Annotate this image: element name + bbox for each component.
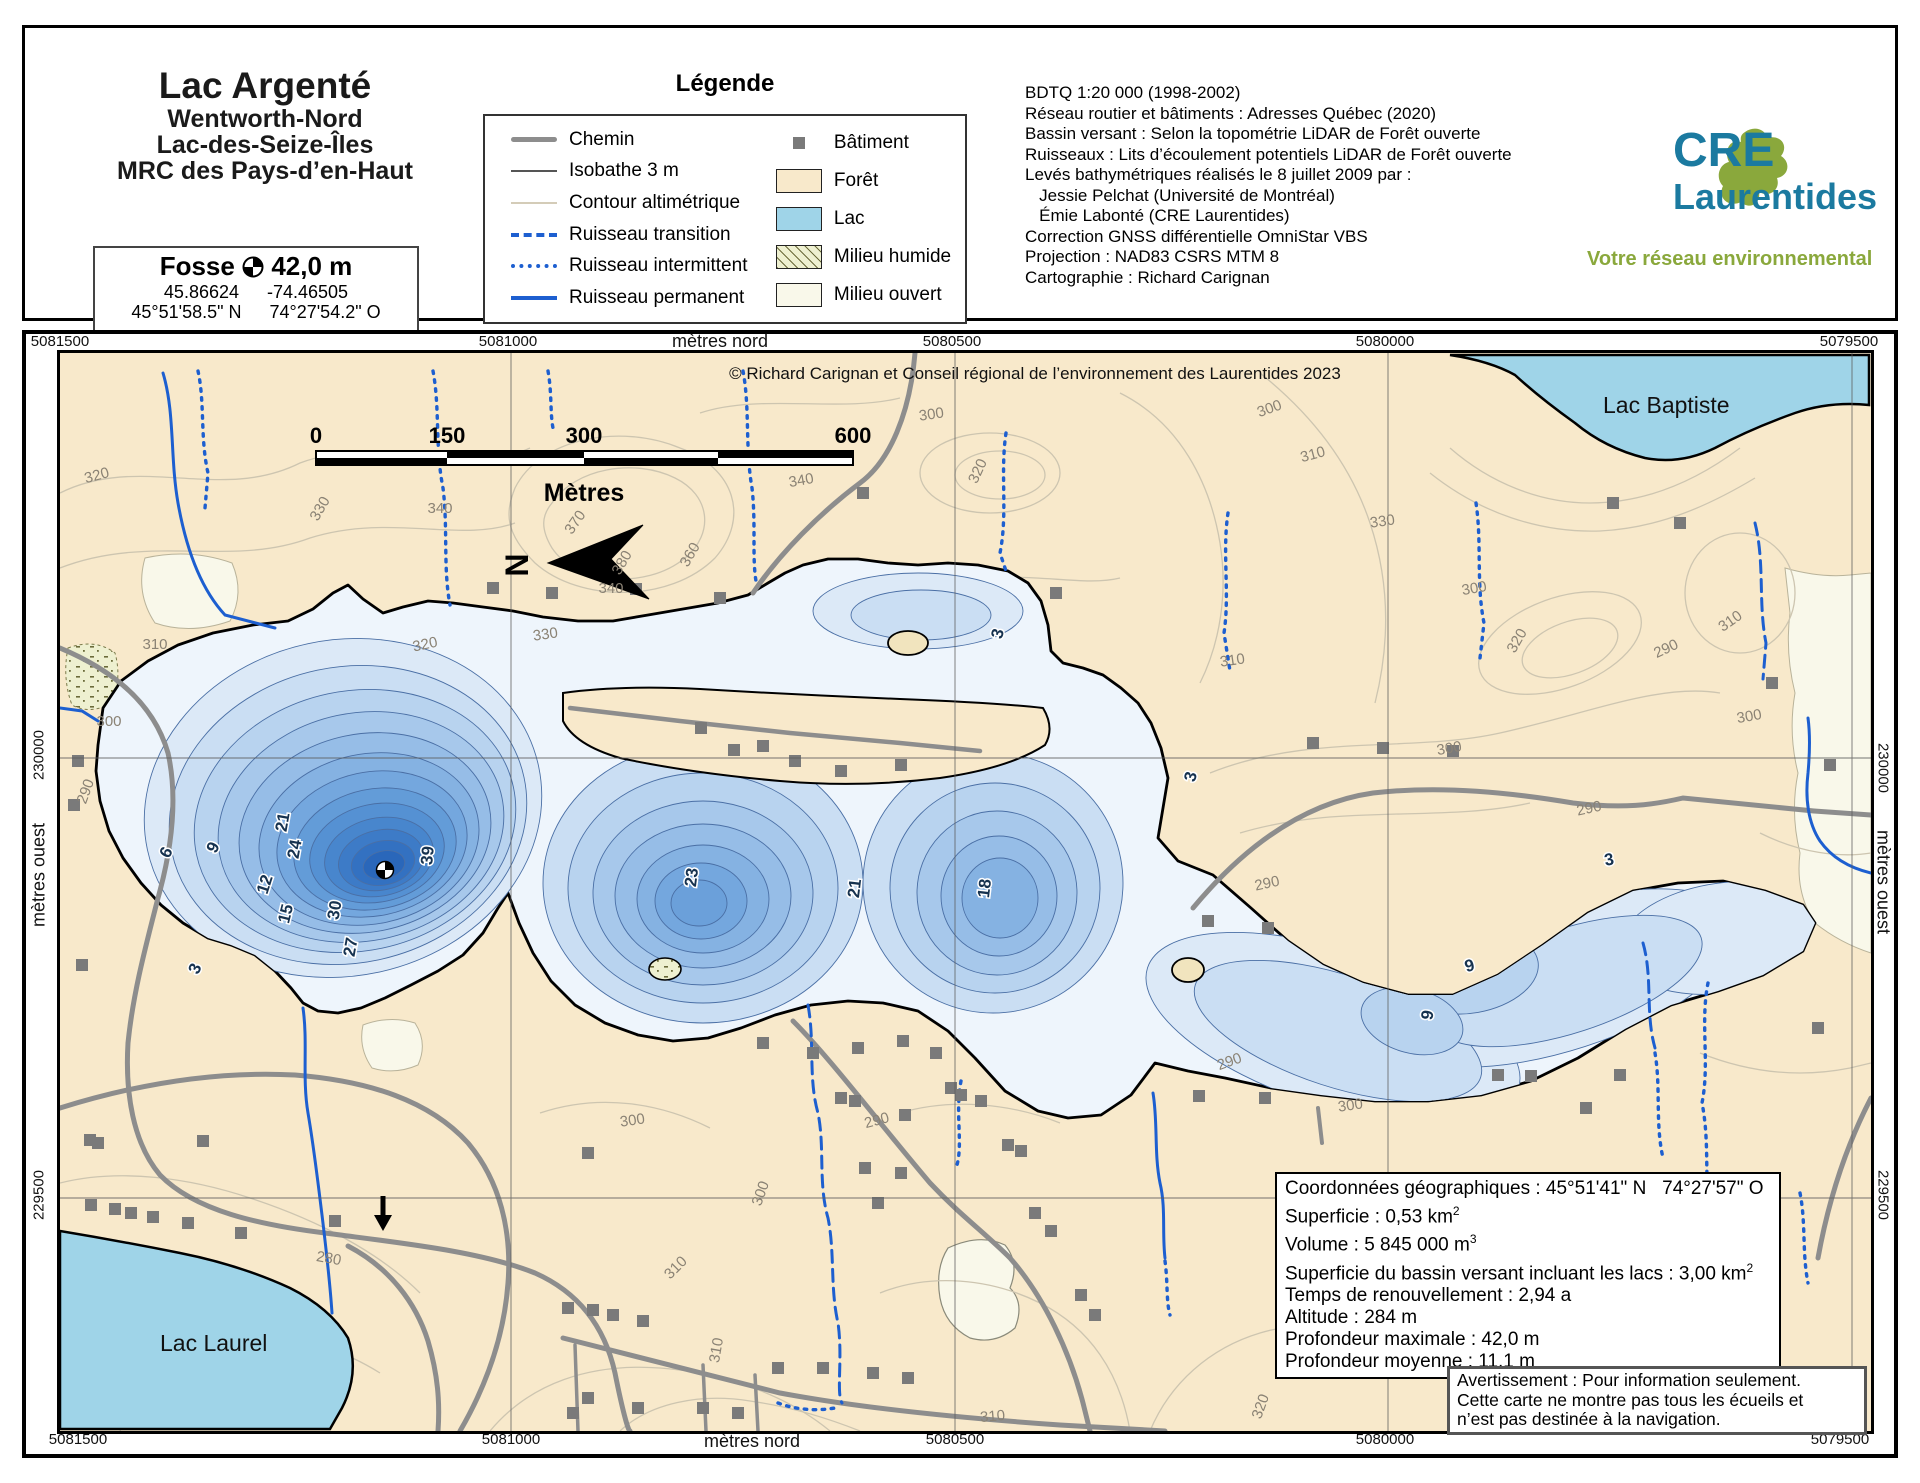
building-marker xyxy=(582,1392,594,1404)
building-marker xyxy=(92,1137,104,1149)
contour-elevation-label: 330 xyxy=(1369,511,1396,531)
building-marker xyxy=(182,1217,194,1229)
building-marker xyxy=(235,1227,247,1239)
building-marker xyxy=(807,1047,819,1059)
legend-swatch-wetland xyxy=(776,245,822,269)
building-marker xyxy=(697,1402,709,1414)
scale-tick: 0 xyxy=(310,423,322,448)
subtitle-mrc: MRC des Pays-d’en-Haut xyxy=(65,158,465,184)
depth-label: 18 xyxy=(974,878,995,899)
building-marker xyxy=(897,1035,909,1047)
depth-label: 21 xyxy=(844,878,865,899)
building-marker xyxy=(732,1407,744,1419)
place-label: Lac Laurel xyxy=(160,1330,267,1356)
fosse-lat-decimal: 45.86624 xyxy=(164,282,239,302)
building-marker xyxy=(757,1037,769,1049)
building-marker xyxy=(899,1109,911,1121)
contour-elevation-label: 300 xyxy=(96,713,121,730)
legend-item-lake: Lac xyxy=(776,207,965,231)
fosse-lon-decimal: -74.46505 xyxy=(267,282,348,302)
legend-column-fills: BâtimentForêtLacMilieu humideMilieu ouve… xyxy=(750,116,965,322)
warning-line: Cette carte ne montre pas tous les écuei… xyxy=(1457,1391,1857,1411)
source-line: BDTQ 1:20 000 (1998-2002) xyxy=(1025,83,1585,104)
scale-tick: 600 xyxy=(835,423,872,448)
fosse-lat-dms: 45°51'58.5" N xyxy=(131,302,241,322)
legend-label: Bâtiment xyxy=(834,132,909,154)
building-marker xyxy=(895,1167,907,1179)
building-marker xyxy=(1377,742,1389,754)
logo-name: Laurentides xyxy=(1673,176,1877,218)
building-marker xyxy=(835,765,847,777)
building-marker xyxy=(835,1092,847,1104)
legend-label: Isobathe 3 m xyxy=(569,160,679,182)
building-marker xyxy=(632,1402,644,1414)
building-marker xyxy=(1089,1309,1101,1321)
building-marker xyxy=(1050,587,1062,599)
building-marker xyxy=(895,759,907,771)
source-line: Levés bathymétriques réalisés le 8 juill… xyxy=(1025,165,1585,186)
building-marker xyxy=(1262,922,1274,934)
legend-item-sdot: Ruisseau intermittent xyxy=(511,254,750,278)
depth-label: 27 xyxy=(340,936,362,958)
building-marker xyxy=(1193,1090,1205,1102)
fosse-info-box: Fosse 42,0 m 45.86624 -74.46505 45°51'58… xyxy=(93,246,419,334)
building-marker xyxy=(125,1207,137,1219)
legend-item-isobath: Isobathe 3 m xyxy=(511,159,750,183)
source-line: Projection : NAD83 CSRS MTM 8 xyxy=(1025,247,1585,268)
building-marker xyxy=(1029,1207,1041,1219)
legend-item-forest: Forêt xyxy=(776,169,965,193)
building-marker xyxy=(817,1362,829,1374)
north-letter: N xyxy=(499,553,535,576)
building-marker xyxy=(1202,915,1214,927)
building-marker xyxy=(789,755,801,767)
legend-item-contour: Contour altimétrique xyxy=(511,191,750,215)
building-marker xyxy=(1015,1145,1027,1157)
building-marker xyxy=(975,1095,987,1107)
wetland-island xyxy=(649,958,681,980)
building-marker xyxy=(1580,1102,1592,1114)
depth-label: 23 xyxy=(681,867,702,888)
legend-swatch-contour xyxy=(511,191,557,215)
building-marker xyxy=(562,1302,574,1314)
legend-label: Milieu ouvert xyxy=(834,284,942,306)
legend-item-building: Bâtiment xyxy=(776,131,965,155)
building-marker xyxy=(872,1197,884,1209)
legend-label: Ruisseau permanent xyxy=(569,287,744,309)
building-marker xyxy=(714,592,726,604)
info-line: Temps de renouvellement : 2,94 a xyxy=(1285,1285,1771,1307)
building-marker xyxy=(72,755,84,767)
building-marker xyxy=(587,1304,599,1316)
scale-tick: 300 xyxy=(566,423,603,448)
legend-item-road: Chemin xyxy=(511,128,750,152)
building-marker xyxy=(76,959,88,971)
fosse-icon xyxy=(242,256,264,278)
legend-panel: CheminIsobathe 3 mContour altimétriqueRu… xyxy=(483,114,967,324)
legend-swatch-building xyxy=(776,131,822,155)
info-line: Altitude : 284 m xyxy=(1285,1307,1771,1329)
contour-elevation-label: 310 xyxy=(979,1407,1005,1426)
legend-title: Légende xyxy=(585,70,865,98)
building-marker xyxy=(197,1135,209,1147)
building-marker xyxy=(1075,1289,1087,1301)
building-marker xyxy=(607,1309,619,1321)
legend-label: Lac xyxy=(834,208,865,230)
subtitle-locality: Lac-des-Seize-Îles xyxy=(65,132,465,158)
fosse-label: Fosse xyxy=(160,251,235,281)
contour-elevation-label: 300 xyxy=(619,1110,646,1130)
warning-line: Avertissement : Pour information seuleme… xyxy=(1457,1371,1857,1391)
building-marker xyxy=(955,1089,967,1101)
legend-swatch-forest xyxy=(776,169,822,193)
building-marker xyxy=(637,1315,649,1327)
legend-label: Chemin xyxy=(569,129,634,151)
source-line: Jessie Pelchat (Université de Montréal) xyxy=(1025,186,1585,207)
legend-swatch-sdot xyxy=(511,254,557,278)
building-marker xyxy=(1614,1069,1626,1081)
contour-elevation-label: 300 xyxy=(918,404,945,424)
scale-tick: 150 xyxy=(429,423,466,448)
depth-label: 24 xyxy=(284,838,306,860)
warning-box: Avertissement : Pour information seuleme… xyxy=(1447,1366,1867,1435)
building-marker xyxy=(1492,1069,1504,1081)
map-copyright: © Richard Carignan et Conseil régional d… xyxy=(729,364,1341,383)
warning-line: n’est pas destinée à la navigation. xyxy=(1457,1410,1857,1430)
logo-acronym: CRE xyxy=(1673,128,1774,174)
source-line: Cartographie : Richard Carignan xyxy=(1025,268,1585,289)
building-marker xyxy=(772,1362,784,1374)
fosse-map-marker[interactable] xyxy=(377,862,394,879)
building-marker xyxy=(1812,1022,1824,1034)
legend-item-ssolid: Ruisseau permanent xyxy=(511,286,750,310)
building-marker xyxy=(1525,1070,1537,1082)
legend-swatch-sdash xyxy=(511,223,557,247)
building-marker xyxy=(852,1042,864,1054)
legend-swatch-ssolid xyxy=(511,286,557,310)
legend-label: Ruisseau transition xyxy=(569,224,731,246)
depth-label: 30 xyxy=(324,899,346,921)
legend-label: Ruisseau intermittent xyxy=(569,255,747,277)
building-marker xyxy=(1766,677,1778,689)
source-line: Correction GNSS différentielle OmniStar … xyxy=(1025,227,1585,248)
info-line: Profondeur maximale : 42,0 m xyxy=(1285,1329,1771,1351)
depth-label: 39 xyxy=(417,845,438,866)
building-marker xyxy=(930,1047,942,1059)
building-marker xyxy=(859,1162,871,1174)
fosse-lon-dms: 74°27'54.2" O xyxy=(270,302,381,322)
building-marker xyxy=(728,744,740,756)
building-marker xyxy=(1045,1225,1057,1237)
contour-elevation-label: 310 xyxy=(142,636,167,653)
legend-label: Contour altimétrique xyxy=(569,192,740,214)
source-line: Réseau routier et bâtiments : Adresses Q… xyxy=(1025,104,1585,125)
building-marker xyxy=(849,1095,861,1107)
legend-swatch-road xyxy=(511,128,557,152)
contour-elevation-label: 340 xyxy=(427,500,452,517)
building-marker xyxy=(867,1367,879,1379)
building-marker xyxy=(582,1147,594,1159)
building-marker xyxy=(147,1211,159,1223)
page: Lac Argenté Wentworth-Nord Lac-des-Seize… xyxy=(0,0,1920,1483)
island xyxy=(888,631,928,655)
page-title: Lac Argenté xyxy=(65,66,465,106)
lake-info-box: Coordonnées géographiques : 45°51'41" N … xyxy=(1275,1172,1781,1379)
building-marker xyxy=(329,1215,341,1227)
depth-label: 21 xyxy=(272,811,294,833)
building-marker xyxy=(109,1203,121,1215)
info-line: Superficie : 0,53 km2 xyxy=(1285,1200,1771,1228)
legend-label: Milieu humide xyxy=(834,246,951,268)
building-marker xyxy=(1259,1092,1271,1104)
info-line: Coordonnées géographiques : 45°51'41" N … xyxy=(1285,1178,1771,1200)
header-panel: Lac Argenté Wentworth-Nord Lac-des-Seize… xyxy=(22,25,1898,321)
contour-elevation-label: 300 xyxy=(1337,1095,1364,1115)
building-marker xyxy=(1307,737,1319,749)
subtitle-municipality: Wentworth-Nord xyxy=(65,106,465,132)
scale-unit-label: Mètres xyxy=(544,479,625,507)
legend-column-lines: CheminIsobathe 3 mContour altimétriqueRu… xyxy=(485,116,750,322)
contour-elevation-label: 340 xyxy=(598,580,623,597)
legend-item-wetland: Milieu humide xyxy=(776,245,965,269)
legend-swatch-open xyxy=(776,283,822,307)
contour-elevation-label: 310 xyxy=(1219,650,1246,670)
contour-elevation-label: 330 xyxy=(532,624,559,644)
legend-swatch-lake xyxy=(776,207,822,231)
legend-label: Forêt xyxy=(834,170,878,192)
isobath-18m xyxy=(962,858,1038,938)
building-marker xyxy=(1824,759,1836,771)
building-marker xyxy=(85,1199,97,1211)
source-line: Ruisseaux : Lits d’écoulement potentiels… xyxy=(1025,145,1585,166)
building-marker xyxy=(857,487,869,499)
fosse-depth-line: Fosse 42,0 m xyxy=(95,251,417,282)
fosse-depth-value: 42,0 m xyxy=(271,251,352,281)
legend-item-sdash: Ruisseau transition xyxy=(511,223,750,247)
info-line: Volume : 5 845 000 m3 xyxy=(1285,1228,1771,1256)
info-line: Superficie du bassin versant incluant le… xyxy=(1285,1257,1771,1285)
isobath-6m xyxy=(851,590,991,640)
place-label: Lac Baptiste xyxy=(1603,392,1730,418)
building-marker xyxy=(546,587,558,599)
building-marker xyxy=(1674,517,1686,529)
source-line: Bassin versant : Selon la topométrie LiD… xyxy=(1025,124,1585,145)
island xyxy=(1172,958,1204,982)
source-line: Émie Labonté (CRE Laurentides) xyxy=(1025,206,1585,227)
building-marker xyxy=(695,722,707,734)
sources-block: BDTQ 1:20 000 (1998-2002)Réseau routier … xyxy=(1025,83,1585,288)
building-marker xyxy=(757,740,769,752)
building-marker xyxy=(1002,1139,1014,1151)
building-marker xyxy=(902,1372,914,1384)
building-marker xyxy=(567,1407,579,1419)
legend-item-open: Milieu ouvert xyxy=(776,283,965,307)
legend-swatch-isobath xyxy=(511,159,557,183)
logo-tagline: Votre réseau environnemental xyxy=(1587,248,1872,271)
building-marker xyxy=(487,582,499,594)
building-marker xyxy=(1607,497,1619,509)
title-block: Lac Argenté Wentworth-Nord Lac-des-Seize… xyxy=(65,66,465,184)
